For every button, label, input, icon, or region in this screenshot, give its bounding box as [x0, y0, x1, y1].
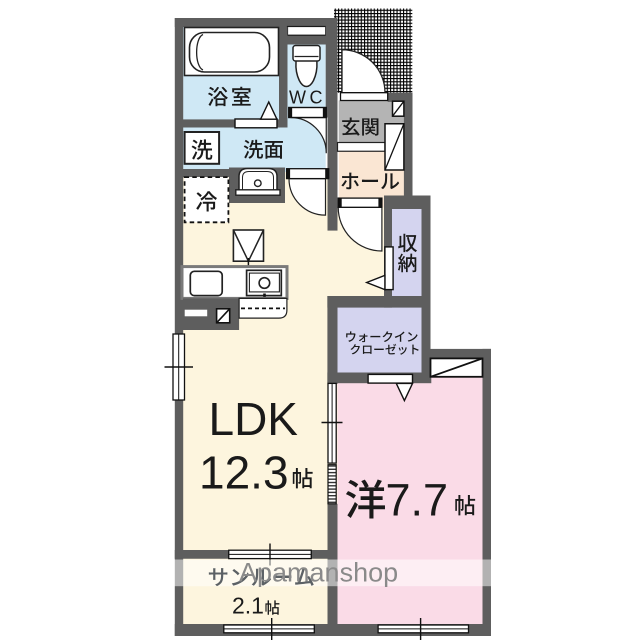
svg-text:2.1: 2.1 [232, 593, 264, 619]
svg-text:WC: WC [289, 87, 326, 107]
svg-text:Apamanshop: Apamanshop [239, 558, 398, 588]
svg-text:12.3: 12.3 [199, 446, 289, 498]
svg-text:LDK: LDK [209, 393, 299, 445]
svg-text:7.7: 7.7 [386, 475, 449, 526]
